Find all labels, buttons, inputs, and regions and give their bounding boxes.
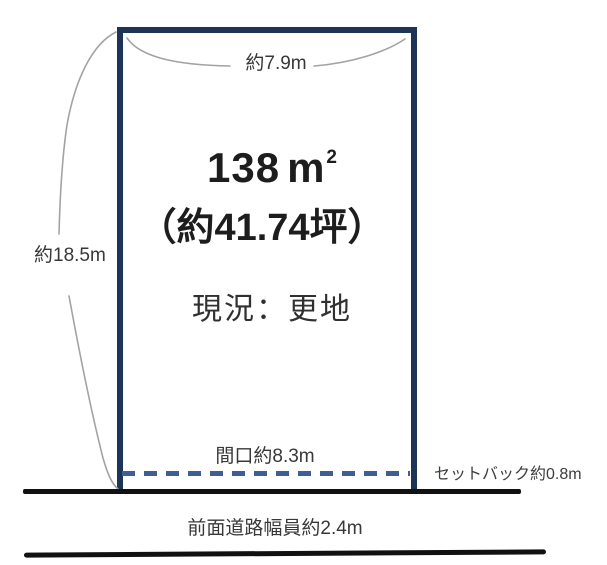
road-near-edge-line — [23, 489, 521, 494]
land-plot-diagram: 約7.9m 約18.5m 138m2 （約41.74坪） 現況：更地 間口約8.… — [0, 0, 607, 565]
width-dimension-label: 約7.9m — [245, 48, 306, 75]
setback-dashed-line — [122, 471, 410, 476]
left-bracket-upper-curve — [59, 32, 116, 234]
area-value: 138 — [207, 144, 280, 191]
left-bracket-lower-curve — [69, 296, 118, 489]
setback-dimension-label: セットバック約0.8m — [434, 460, 582, 484]
plot-boundary — [117, 27, 417, 490]
area-label: 138m2 — [207, 144, 337, 192]
road-width-label: 前面道路幅員約2.4m — [187, 513, 362, 540]
area-tsubo-label: （約41.74坪） — [138, 196, 385, 251]
status-label: 現況：更地 — [192, 284, 352, 328]
area-superscript: 2 — [326, 147, 338, 168]
road-far-edge-line — [24, 549, 546, 557]
area-unit: m — [287, 144, 325, 191]
frontage-dimension-label: 間口約8.3m — [215, 441, 314, 468]
height-dimension-label: 約18.5m — [34, 240, 106, 267]
